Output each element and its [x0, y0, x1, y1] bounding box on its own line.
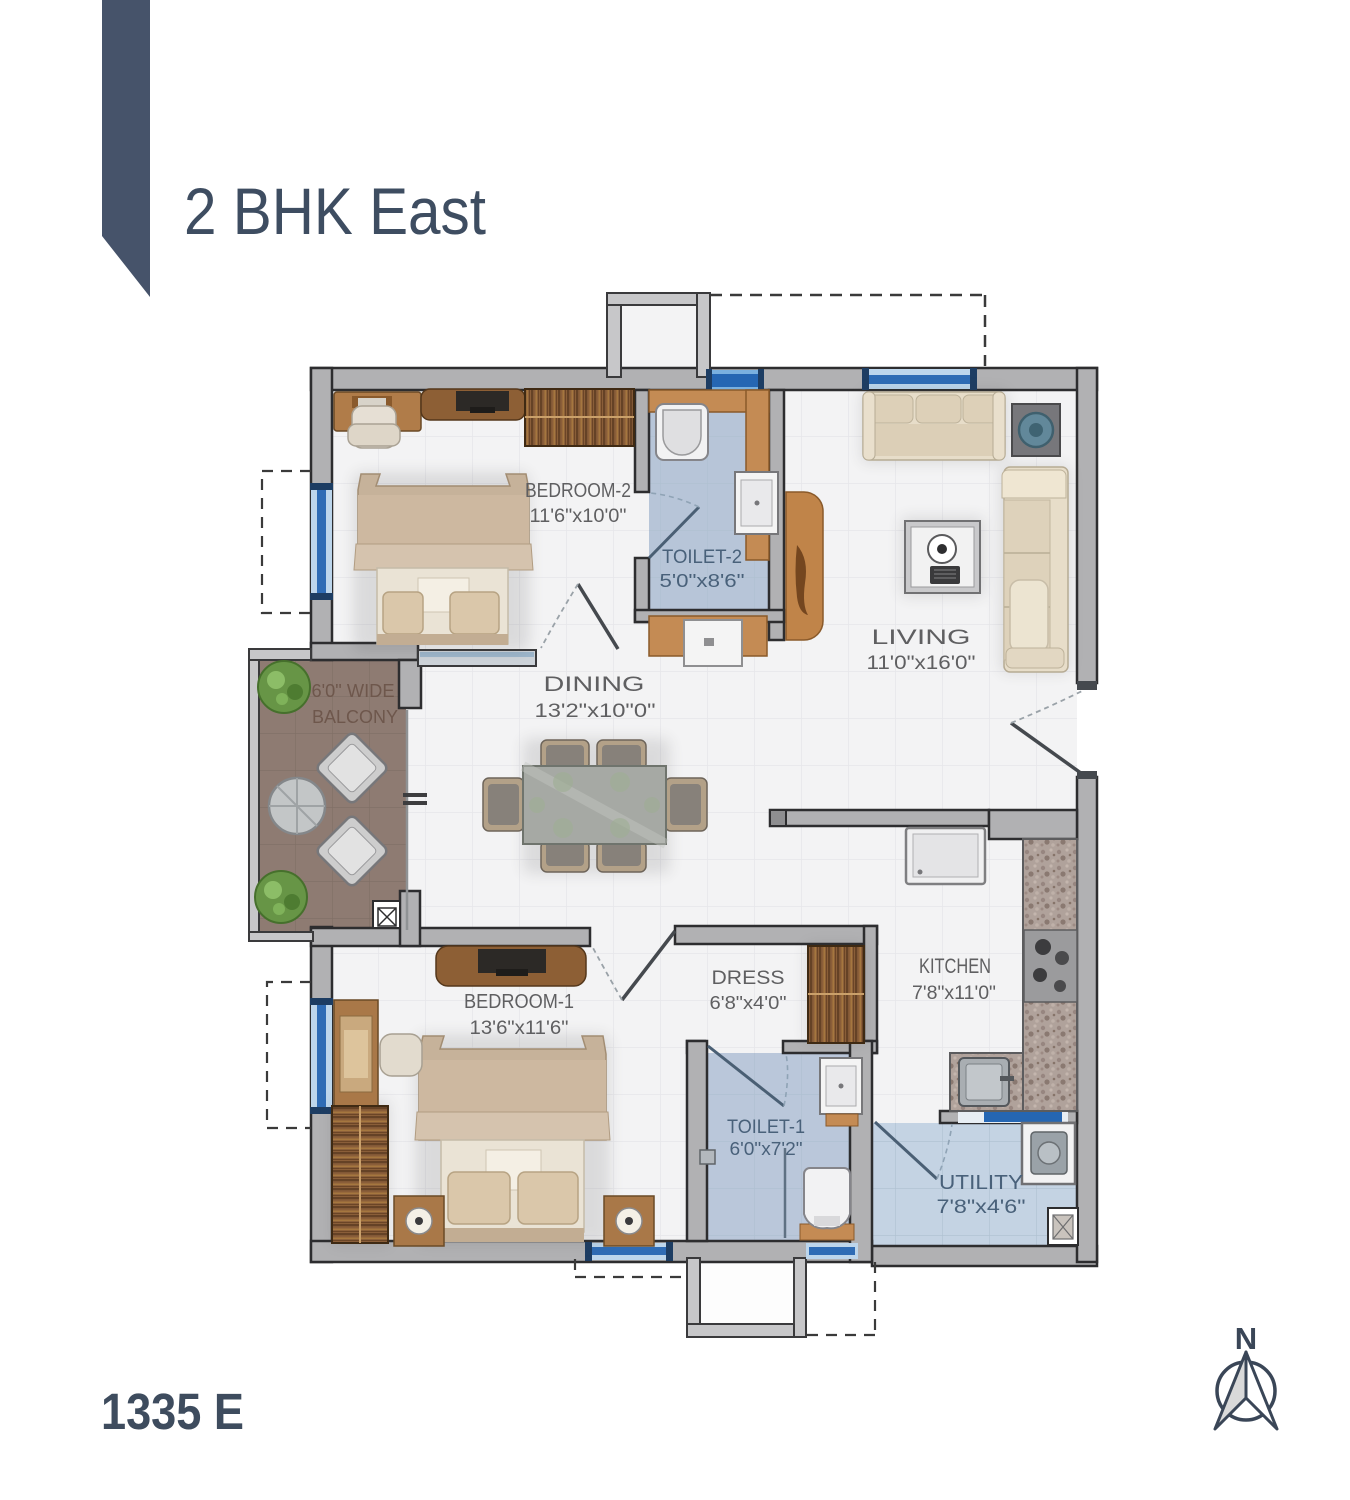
- svg-text:DRESS: DRESS: [712, 968, 785, 989]
- svg-text:1335 E: 1335 E: [101, 1383, 244, 1440]
- svg-text:11'0"x16'0": 11'0"x16'0": [867, 653, 976, 674]
- svg-text:BALCONY: BALCONY: [312, 707, 398, 727]
- svg-text:BEDROOM-1: BEDROOM-1: [464, 991, 574, 1013]
- svg-text:13'2"x10"0": 13'2"x10"0": [535, 701, 656, 722]
- svg-text:6'0"x7'2": 6'0"x7'2": [730, 1139, 803, 1159]
- svg-text:LIVING: LIVING: [872, 626, 971, 649]
- svg-text:UTILITY: UTILITY: [939, 1172, 1023, 1194]
- svg-text:13'6"x11'6": 13'6"x11'6": [470, 1018, 569, 1039]
- svg-text:6'8"x4'0": 6'8"x4'0": [710, 993, 787, 1013]
- svg-text:TOILET-1: TOILET-1: [727, 1117, 805, 1138]
- svg-text:6'0" WIDE: 6'0" WIDE: [312, 681, 395, 701]
- svg-text:2 BHK East: 2 BHK East: [184, 174, 486, 248]
- svg-text:7'8"x11'0": 7'8"x11'0": [912, 983, 996, 1004]
- svg-text:11'6"x10'0": 11'6"x10'0": [530, 506, 627, 527]
- svg-text:TOILET-2: TOILET-2: [662, 547, 742, 568]
- svg-text:DINING: DINING: [544, 673, 645, 696]
- svg-text:BEDROOM-2: BEDROOM-2: [525, 480, 631, 502]
- svg-text:KITCHEN: KITCHEN: [919, 955, 991, 978]
- svg-text:7'8"x4'6": 7'8"x4'6": [937, 1197, 1026, 1218]
- svg-text:5'0"x8'6": 5'0"x8'6": [660, 571, 745, 591]
